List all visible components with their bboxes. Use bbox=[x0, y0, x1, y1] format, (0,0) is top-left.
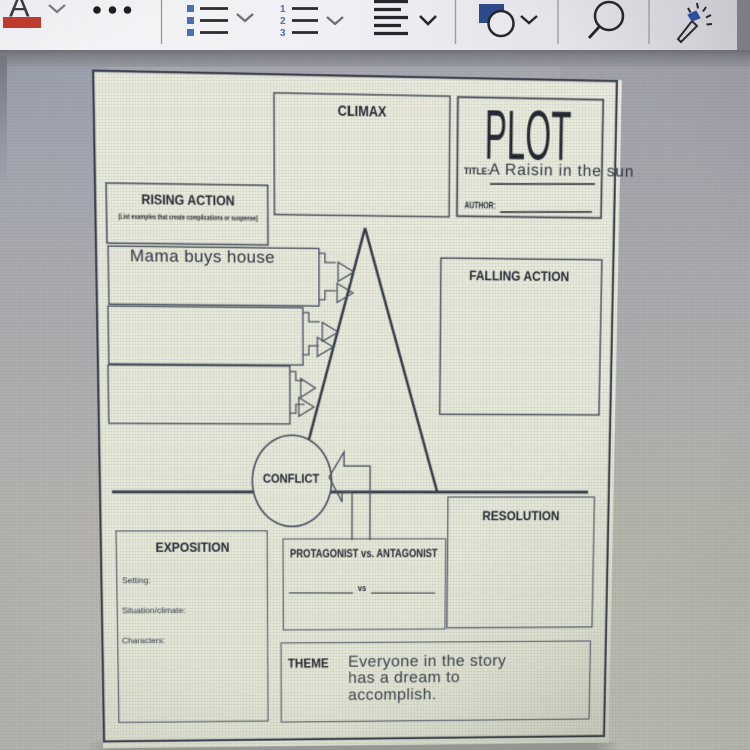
svg-text:1: 1 bbox=[280, 4, 286, 15]
svg-text:2: 2 bbox=[280, 16, 286, 27]
svg-text:3: 3 bbox=[280, 28, 286, 39]
